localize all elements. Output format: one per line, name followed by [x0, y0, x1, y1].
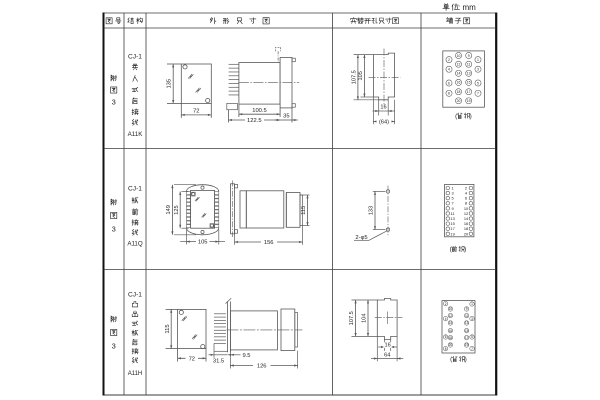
svg-text:6: 6	[445, 335, 447, 339]
svg-text:107.5: 107.5	[351, 70, 357, 84]
svg-text:CJ-1: CJ-1	[128, 292, 142, 299]
svg-text:16: 16	[457, 81, 461, 85]
svg-text:9.5: 9.5	[242, 353, 250, 359]
svg-text:20: 20	[449, 343, 453, 347]
svg-text:3: 3	[112, 98, 116, 107]
svg-text:3: 3	[112, 342, 116, 351]
svg-text:16: 16	[384, 343, 390, 349]
svg-text:A11K: A11K	[128, 131, 144, 138]
svg-text:11: 11	[465, 314, 469, 318]
svg-text:5: 5	[477, 81, 479, 85]
svg-text:35: 35	[283, 114, 289, 120]
svg-text:18: 18	[449, 336, 453, 340]
svg-text:1: 1	[471, 302, 473, 306]
svg-text:133: 133	[369, 206, 375, 215]
svg-text:3: 3	[477, 67, 479, 71]
svg-text:3: 3	[112, 225, 116, 234]
svg-text:): )	[465, 356, 467, 363]
svg-text:64: 64	[384, 352, 390, 358]
svg-text:4: 4	[445, 317, 447, 321]
svg-text:16: 16	[449, 329, 453, 333]
svg-text:(64): (64)	[379, 120, 389, 126]
svg-text:10: 10	[457, 54, 461, 58]
svg-text:9: 9	[468, 54, 470, 58]
svg-text:10: 10	[449, 307, 453, 311]
svg-text:1: 1	[477, 58, 479, 62]
svg-text:5: 5	[471, 335, 473, 339]
svg-text:100.5: 100.5	[252, 108, 267, 114]
svg-text:8: 8	[448, 92, 450, 96]
svg-text:105: 105	[358, 71, 364, 80]
svg-text:156: 156	[264, 240, 274, 246]
svg-text:4: 4	[448, 67, 450, 71]
svg-text:17: 17	[467, 90, 471, 94]
svg-text:9: 9	[466, 307, 468, 311]
svg-text:107.5: 107.5	[349, 311, 355, 325]
svg-text:15: 15	[465, 329, 469, 333]
svg-text:CJ-1: CJ-1	[128, 53, 142, 60]
svg-text:): )	[470, 113, 472, 120]
svg-text:115: 115	[301, 206, 307, 215]
svg-text:7: 7	[477, 92, 479, 96]
svg-text:7: 7	[471, 347, 473, 351]
svg-text:19: 19	[465, 343, 469, 347]
svg-text:6: 6	[448, 81, 450, 85]
svg-text:: mm: : mm	[458, 3, 476, 12]
svg-text:11: 11	[467, 62, 471, 66]
svg-text:19: 19	[467, 99, 471, 103]
svg-text:12: 12	[449, 314, 453, 318]
svg-text:17: 17	[465, 336, 469, 340]
svg-text:115: 115	[165, 324, 171, 333]
svg-text:19: 19	[450, 231, 454, 236]
svg-text:A11Q: A11Q	[127, 240, 143, 247]
svg-text:149: 149	[166, 205, 172, 214]
svg-text:14: 14	[449, 321, 453, 325]
svg-text:15: 15	[467, 81, 471, 85]
svg-text:3: 3	[471, 317, 473, 321]
svg-text:16: 16	[380, 105, 386, 111]
svg-text:18: 18	[457, 90, 461, 94]
svg-text:31.5: 31.5	[213, 358, 224, 364]
svg-text:135: 135	[167, 79, 173, 89]
svg-text:72: 72	[193, 109, 199, 115]
svg-text:105: 105	[198, 240, 208, 246]
svg-text:14: 14	[457, 72, 461, 76]
svg-text:CJ-1: CJ-1	[128, 185, 142, 192]
svg-text:2: 2	[445, 302, 447, 306]
svg-text:8: 8	[445, 347, 447, 351]
svg-text:13: 13	[467, 72, 471, 76]
svg-text:72: 72	[189, 356, 195, 362]
svg-text:A11H: A11H	[128, 371, 143, 377]
svg-text:104: 104	[362, 314, 368, 323]
svg-text:2-φ5: 2-φ5	[355, 235, 367, 241]
svg-text:13: 13	[465, 321, 469, 325]
svg-text:20: 20	[457, 99, 461, 103]
svg-text:125: 125	[174, 205, 180, 214]
svg-text:12: 12	[457, 62, 461, 66]
svg-text:126: 126	[257, 364, 267, 370]
svg-text:122.5: 122.5	[247, 118, 262, 124]
svg-text:2: 2	[448, 58, 450, 62]
svg-text:): )	[464, 246, 466, 253]
